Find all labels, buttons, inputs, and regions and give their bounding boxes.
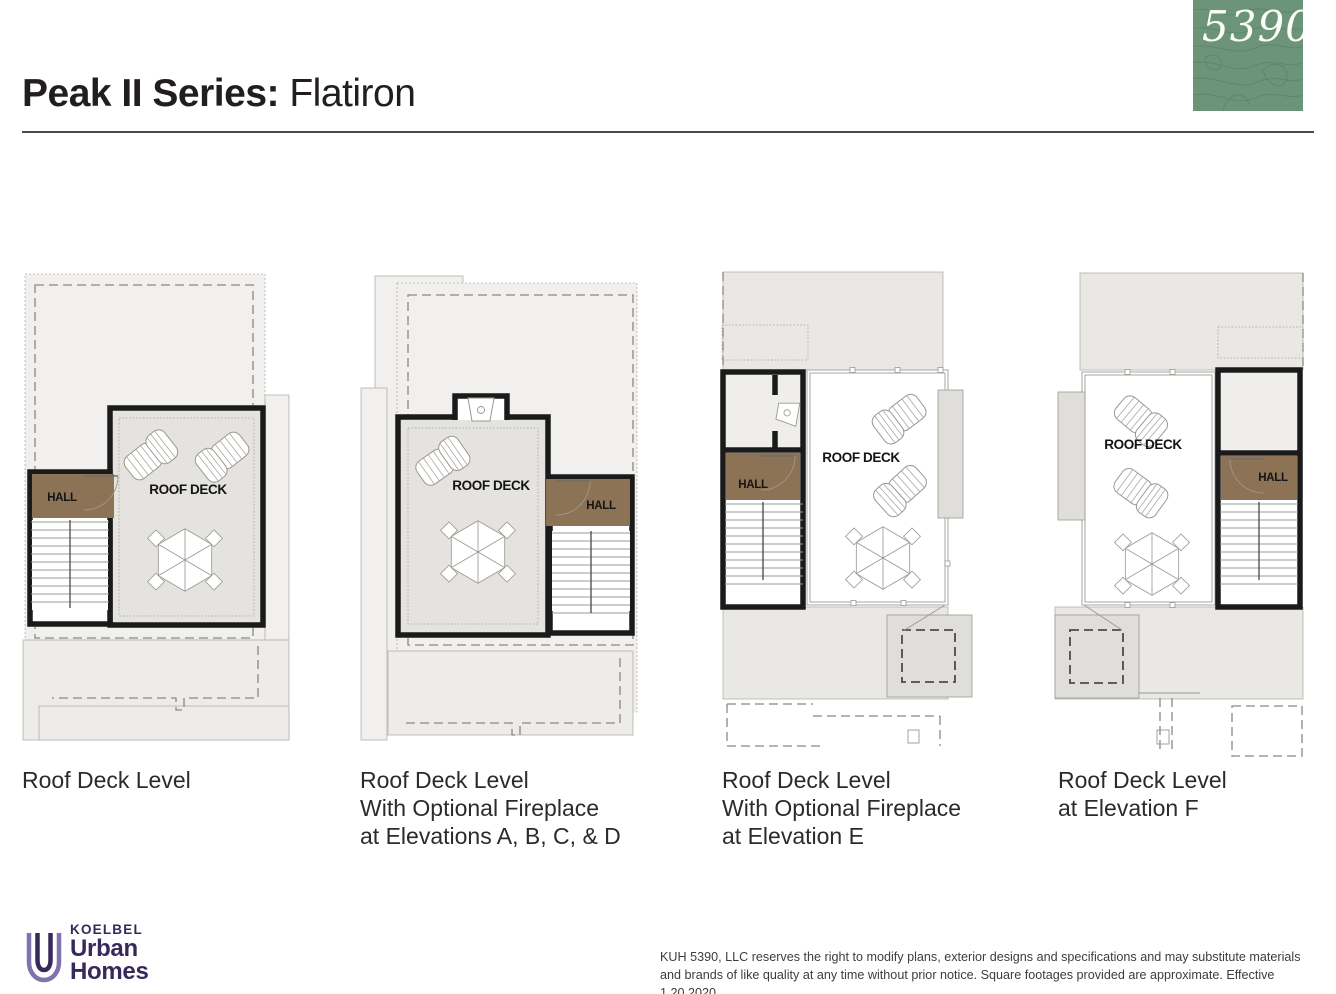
upper-room (1221, 373, 1297, 450)
patio-table-icon (846, 527, 921, 590)
header-divider (22, 131, 1314, 133)
patio-table-icon (1115, 533, 1190, 596)
upper-roof-block (1080, 273, 1303, 370)
plan-caption: Roof Deck Level With Optional Fireplace … (722, 766, 961, 850)
legal-disclaimer: KUH 5390, LLC reserves the right to modi… (660, 948, 1312, 994)
hall-label: HALL (1258, 472, 1288, 484)
upper-roof-block (723, 272, 943, 370)
brand-homes: Homes (70, 960, 149, 983)
floor-plan-elevation-f: HALL ROOF DECK (1040, 268, 1336, 768)
patio-table-icon (441, 521, 516, 584)
lounge-chair-icon (1109, 463, 1171, 521)
elevation-badge-text: 5390' (1202, 2, 1303, 51)
fireplace-icon (468, 398, 494, 421)
koelbel-u-icon (24, 932, 64, 984)
side-strip (1058, 392, 1085, 520)
brand-logo: KOELBEL Urban Homes (70, 922, 149, 983)
page: Peak II Series: Flatiron 5390' (0, 0, 1336, 994)
fireplace-chimney (938, 390, 963, 518)
side-strip (265, 395, 289, 640)
roof-deck-label: ROOF DECK (822, 450, 900, 465)
roof-deck-label: ROOF DECK (452, 478, 530, 493)
plan-name: Flatiron (279, 72, 415, 115)
lounge-chair-icon (870, 460, 931, 520)
hall-label: HALL (586, 500, 616, 512)
lounge-chair-icon (869, 389, 931, 447)
floor-plan-roof-deck: ROOF DECK HALL (22, 268, 332, 760)
plan-caption: Roof Deck Level With Optional Fireplace … (360, 766, 621, 850)
series-name: Peak II Series: (22, 72, 279, 115)
floor-plan-fireplace-e: HALL ROOF DECK (705, 268, 1005, 768)
floor-plan-fireplace-abcd: ROOF DECK HALL (358, 268, 658, 748)
roof-deck-label: ROOF DECK (1104, 437, 1182, 452)
plan-caption: Roof Deck Level at Elevation F (1058, 766, 1227, 822)
roof-deck-label: ROOF DECK (149, 482, 227, 497)
hall-label: HALL (738, 479, 768, 491)
plan-caption: Roof Deck Level (22, 766, 191, 794)
brand-urban: Urban (70, 937, 149, 960)
patio-table-icon (148, 529, 223, 592)
hall-label: HALL (47, 492, 77, 504)
page-title: Peak II Series: Flatiron (22, 72, 415, 116)
hall-area (726, 453, 800, 500)
elevation-badge: 5390' (1193, 0, 1303, 111)
